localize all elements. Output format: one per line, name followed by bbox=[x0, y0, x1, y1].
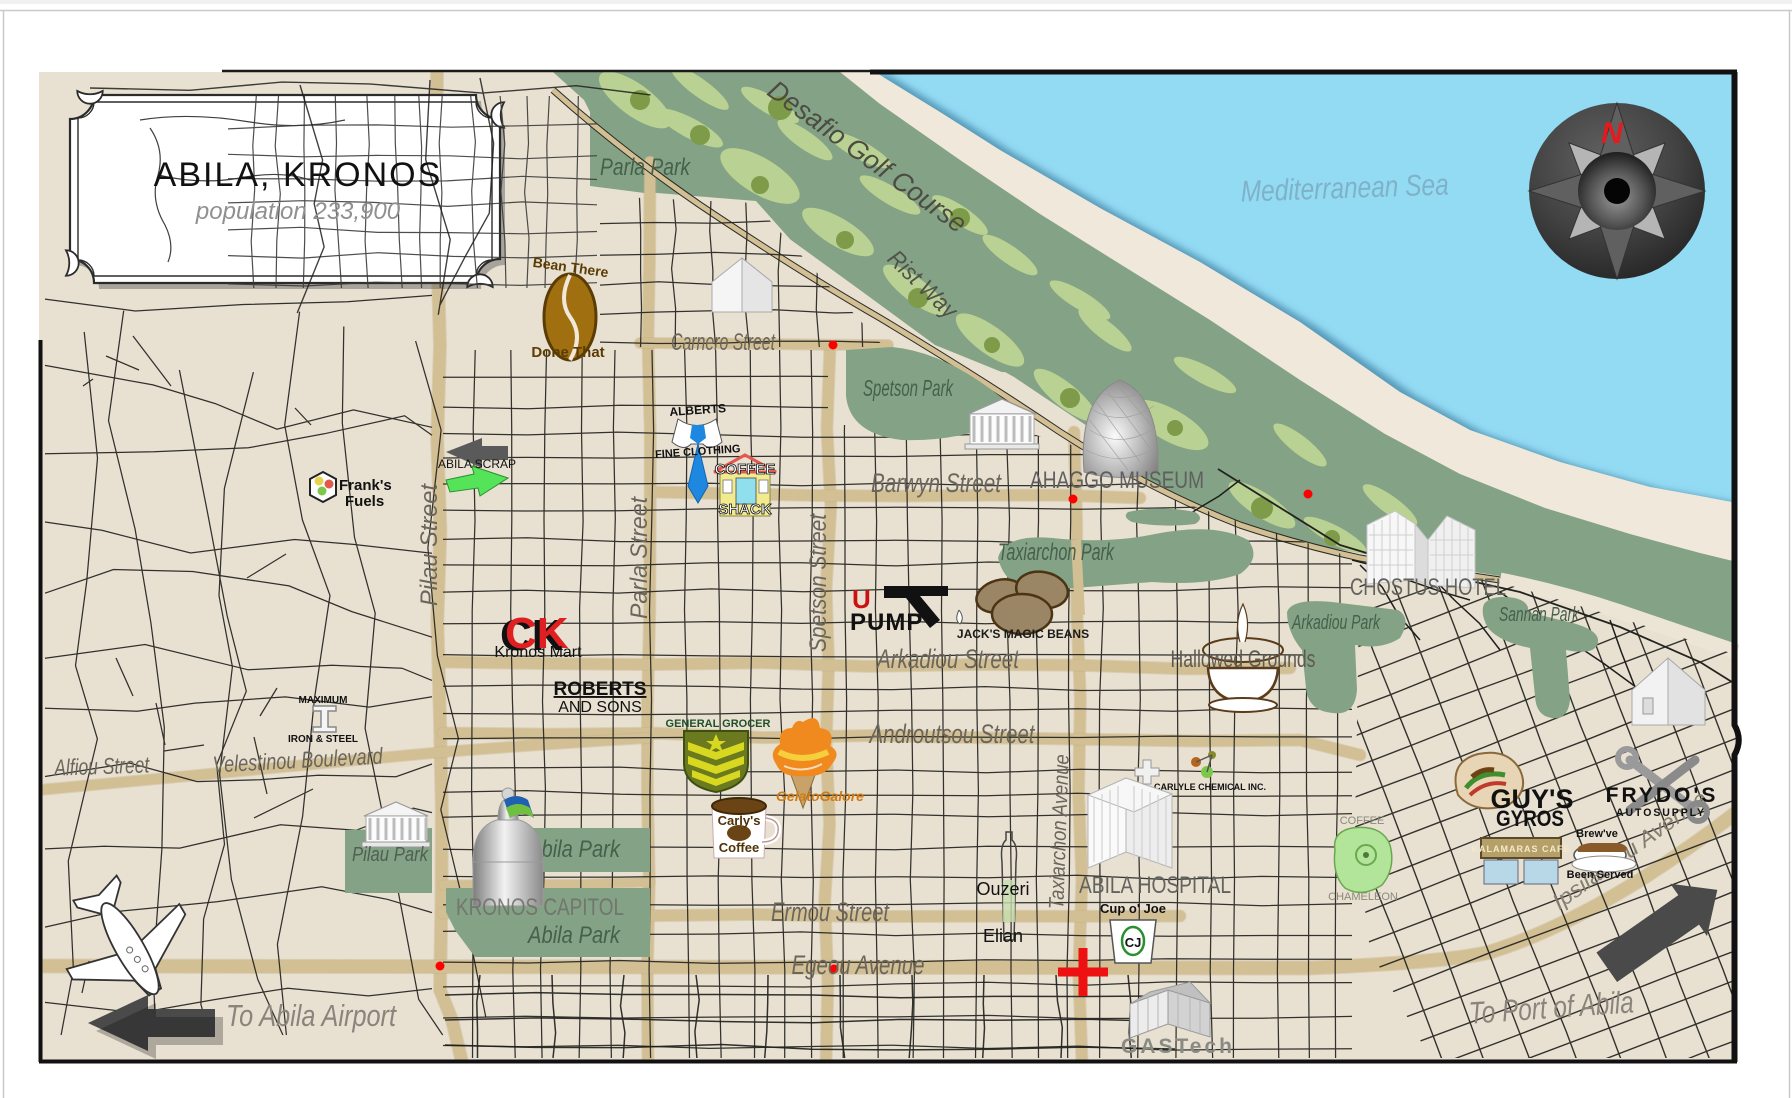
svg-text:PUMP: PUMP bbox=[850, 609, 923, 636]
svg-text:Parla Park: Parla Park bbox=[600, 154, 692, 181]
svg-text:Carly's: Carly's bbox=[718, 813, 761, 828]
svg-text:KRONOS CAPITOL: KRONOS CAPITOL bbox=[456, 894, 624, 921]
svg-text:Ermou Street: Ermou Street bbox=[771, 897, 890, 927]
svg-text:CARLYLE CHEMICAL INC.: CARLYLE CHEMICAL INC. bbox=[1154, 782, 1266, 792]
svg-text:Done That: Done That bbox=[531, 344, 604, 361]
svg-text:ROBERTS: ROBERTS bbox=[554, 679, 647, 700]
svg-text:population 233,900: population 233,900 bbox=[195, 198, 401, 225]
svg-text:GENERAL GROCER: GENERAL GROCER bbox=[666, 718, 771, 730]
svg-text:GASTech: GASTech bbox=[1121, 1035, 1235, 1058]
svg-text:ABILA SCRAP: ABILA SCRAP bbox=[438, 457, 516, 471]
svg-text:Pilau Street: Pilau Street bbox=[416, 483, 443, 606]
svg-text:ABILA, KRONOS: ABILA, KRONOS bbox=[154, 156, 443, 194]
svg-text:JACK'S MAGIC BEANS: JACK'S MAGIC BEANS bbox=[957, 627, 1089, 641]
svg-text:Been Served: Been Served bbox=[1567, 869, 1634, 881]
svg-text:Elian: Elian bbox=[983, 926, 1023, 946]
svg-text:To Abila Airport: To Abila Airport bbox=[226, 998, 397, 1033]
svg-text:Androutsou Street: Androutsou Street bbox=[868, 719, 1036, 749]
svg-text:COFFEE: COFFEE bbox=[1340, 815, 1385, 827]
svg-text:Arkadiou Park: Arkadiou Park bbox=[1291, 612, 1380, 634]
svg-text:SHACK: SHACK bbox=[718, 501, 772, 518]
svg-text:Spetson Park: Spetson Park bbox=[863, 375, 954, 401]
svg-text:AND SONS: AND SONS bbox=[558, 699, 642, 716]
svg-text:Spetson Street: Spetson Street bbox=[805, 513, 832, 652]
svg-text:CJ: CJ bbox=[1125, 935, 1142, 950]
svg-text:Kronos Mart: Kronos Mart bbox=[494, 644, 582, 661]
svg-text:Fuels: Fuels bbox=[345, 493, 384, 510]
svg-text:Abila Park: Abila Park bbox=[526, 922, 621, 949]
svg-text:Cup o' Joe: Cup o' Joe bbox=[1100, 901, 1166, 916]
svg-text:IRON & STEEL: IRON & STEEL bbox=[288, 734, 358, 745]
svg-text:MAXIMUM: MAXIMUM bbox=[299, 695, 348, 706]
svg-text:Taxiarchon Park: Taxiarchon Park bbox=[998, 539, 1115, 566]
svg-text:N: N bbox=[1601, 117, 1624, 150]
svg-text:CHAMELEON: CHAMELEON bbox=[1328, 891, 1398, 903]
svg-text:FRYDO'S: FRYDO'S bbox=[1606, 784, 1719, 807]
svg-text:AUTOSUPPLY: AUTOSUPPLY bbox=[1616, 807, 1706, 819]
svg-text:Pilau Park: Pilau Park bbox=[352, 844, 429, 866]
svg-text:Frank's: Frank's bbox=[339, 477, 392, 494]
svg-text:ABILA HOSPITAL: ABILA HOSPITAL bbox=[1079, 872, 1231, 899]
svg-text:Brew've: Brew've bbox=[1576, 828, 1618, 840]
svg-text:CHOSTUS HOTEL: CHOSTUS HOTEL bbox=[1350, 574, 1506, 601]
svg-text:Carnero Street: Carnero Street bbox=[671, 329, 776, 356]
svg-text:GYROS: GYROS bbox=[1496, 806, 1564, 831]
svg-text:Barwyn Street: Barwyn Street bbox=[871, 468, 1002, 498]
svg-text:AHAGGO MUSEUM: AHAGGO MUSEUM bbox=[1030, 467, 1204, 494]
svg-text:Ouzeri: Ouzeri bbox=[976, 879, 1029, 899]
svg-text:Alfiou Street: Alfiou Street bbox=[52, 751, 151, 780]
svg-text:Sannan Park: Sannan Park bbox=[1499, 604, 1580, 626]
svg-text:GelatoGalore: GelatoGalore bbox=[776, 788, 864, 804]
svg-text:Hallowed Grounds: Hallowed Grounds bbox=[1171, 646, 1316, 673]
svg-text:Coffee: Coffee bbox=[719, 840, 759, 855]
svg-text:Egeou Avenue: Egeou Avenue bbox=[792, 950, 925, 980]
svg-text:Parla Street: Parla Street bbox=[626, 496, 653, 619]
svg-text:COFFEE: COFFEE bbox=[715, 461, 776, 478]
svg-text:KALAMARAS CAFE: KALAMARAS CAFE bbox=[1472, 844, 1571, 854]
svg-text:Arkadiou Street: Arkadiou Street bbox=[875, 644, 1020, 674]
